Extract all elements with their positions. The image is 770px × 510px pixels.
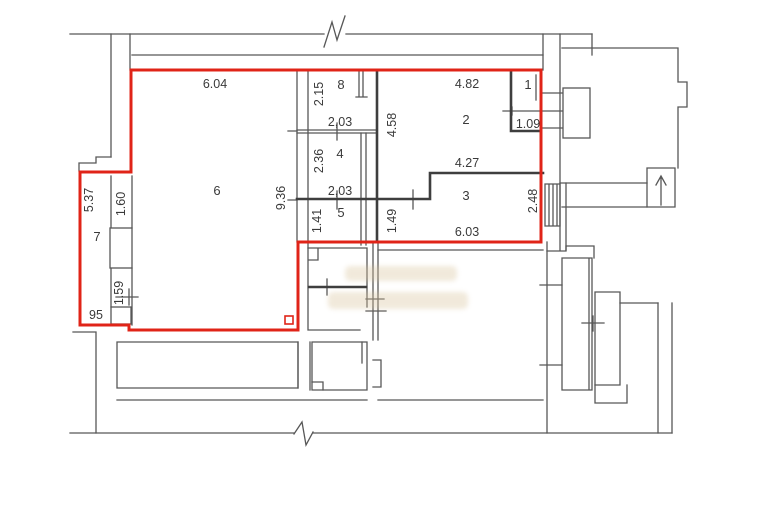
dim-1-59: 1.59 xyxy=(112,281,126,305)
dim-1-41: 1.41 xyxy=(310,209,324,233)
room-number-3: 3 xyxy=(462,188,469,203)
loggia-small-box xyxy=(111,307,131,324)
room-number-5: 5 xyxy=(337,205,344,220)
room-number-2: 2 xyxy=(462,112,469,127)
dim-1-49: 1.49 xyxy=(385,209,399,233)
dim-1-60: 1.60 xyxy=(114,192,128,216)
room-number-8: 8 xyxy=(337,77,344,92)
dim-4-27: 4.27 xyxy=(455,156,479,170)
dim-1-09: 1.09 xyxy=(516,117,540,131)
dim-2-03-lower: 2,03 xyxy=(328,184,352,198)
floor-plan-page: 6.04 2,03 2,03 4.82 1.09 4.27 6.03 95 2.… xyxy=(0,0,770,510)
room-number-4: 4 xyxy=(336,146,343,161)
dim-4-58: 4.58 xyxy=(385,113,399,137)
room-number-6: 6 xyxy=(213,183,220,198)
dim-6-03: 6.03 xyxy=(455,225,479,239)
dim-5-37: 5.37 xyxy=(82,188,96,212)
dim-9-36: 9.36 xyxy=(274,186,288,210)
dim-95: 95 xyxy=(89,308,103,322)
dim-2-15: 2.15 xyxy=(312,82,326,106)
watermark-line-2 xyxy=(328,292,468,309)
porch-pier-box xyxy=(563,88,590,138)
watermark-line-1 xyxy=(345,266,457,281)
room-number-1: 1 xyxy=(524,77,531,92)
dim-6-04: 6.04 xyxy=(203,77,227,91)
floor-plan-drawing: 6.04 2,03 2,03 4.82 1.09 4.27 6.03 95 2.… xyxy=(0,0,770,510)
loggia-window-box xyxy=(110,228,132,268)
dim-2-36: 2.36 xyxy=(312,149,326,173)
dim-2-03-upper: 2,03 xyxy=(328,115,352,129)
dim-2-48: 2.48 xyxy=(526,189,540,213)
dim-4-82: 4.82 xyxy=(455,77,479,91)
room-number-7: 7 xyxy=(93,229,100,244)
